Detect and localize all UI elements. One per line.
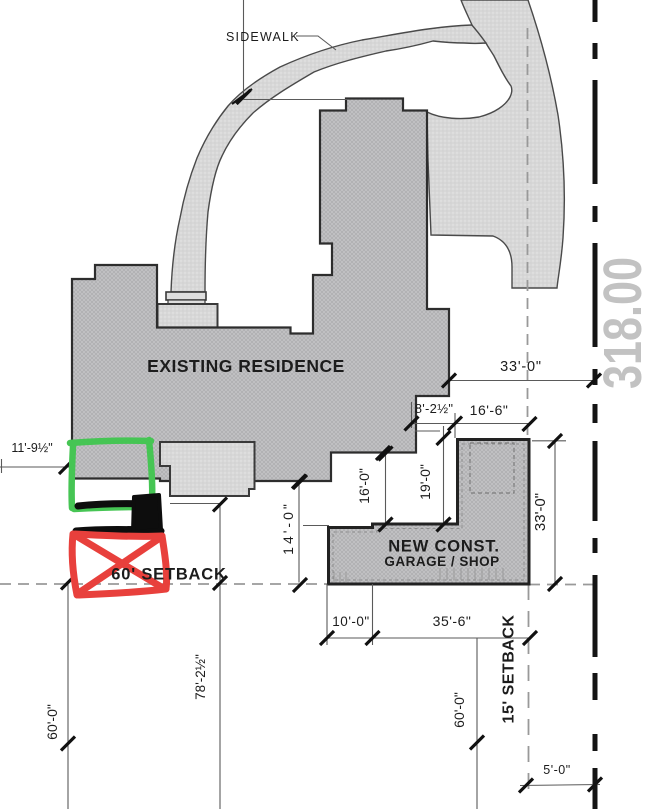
- svg-text:60' SETBACK: 60' SETBACK: [111, 566, 226, 584]
- svg-text:GARAGE / SHOP: GARAGE / SHOP: [384, 554, 499, 569]
- svg-text:10'-0": 10'-0": [332, 614, 369, 629]
- svg-text:15' SETBACK: 15' SETBACK: [501, 615, 518, 724]
- svg-text:318.00: 318.00: [593, 257, 646, 389]
- svg-text:8'-2½": 8'-2½": [415, 401, 454, 416]
- svg-text:33'-0": 33'-0": [532, 493, 549, 531]
- svg-text:60'-0": 60'-0": [44, 704, 60, 740]
- svg-text:SIDEWALK: SIDEWALK: [226, 30, 300, 44]
- svg-text:14'-0": 14'-0": [280, 501, 296, 555]
- svg-text:11'-9½": 11'-9½": [11, 441, 52, 455]
- svg-text:60'-0": 60'-0": [451, 692, 467, 728]
- svg-text:5'-0": 5'-0": [543, 763, 570, 777]
- svg-text:16'-0": 16'-0": [356, 468, 372, 504]
- svg-text:16'-6": 16'-6": [470, 402, 509, 418]
- svg-text:35'-6": 35'-6": [433, 613, 472, 629]
- svg-text:33'-0": 33'-0": [500, 359, 542, 375]
- svg-text:NEW CONST.: NEW CONST.: [388, 538, 500, 556]
- svg-text:19'-0": 19'-0": [417, 464, 433, 500]
- svg-text:EXISTING RESIDENCE: EXISTING RESIDENCE: [147, 356, 345, 376]
- svg-text:78'-2½": 78'-2½": [193, 654, 208, 700]
